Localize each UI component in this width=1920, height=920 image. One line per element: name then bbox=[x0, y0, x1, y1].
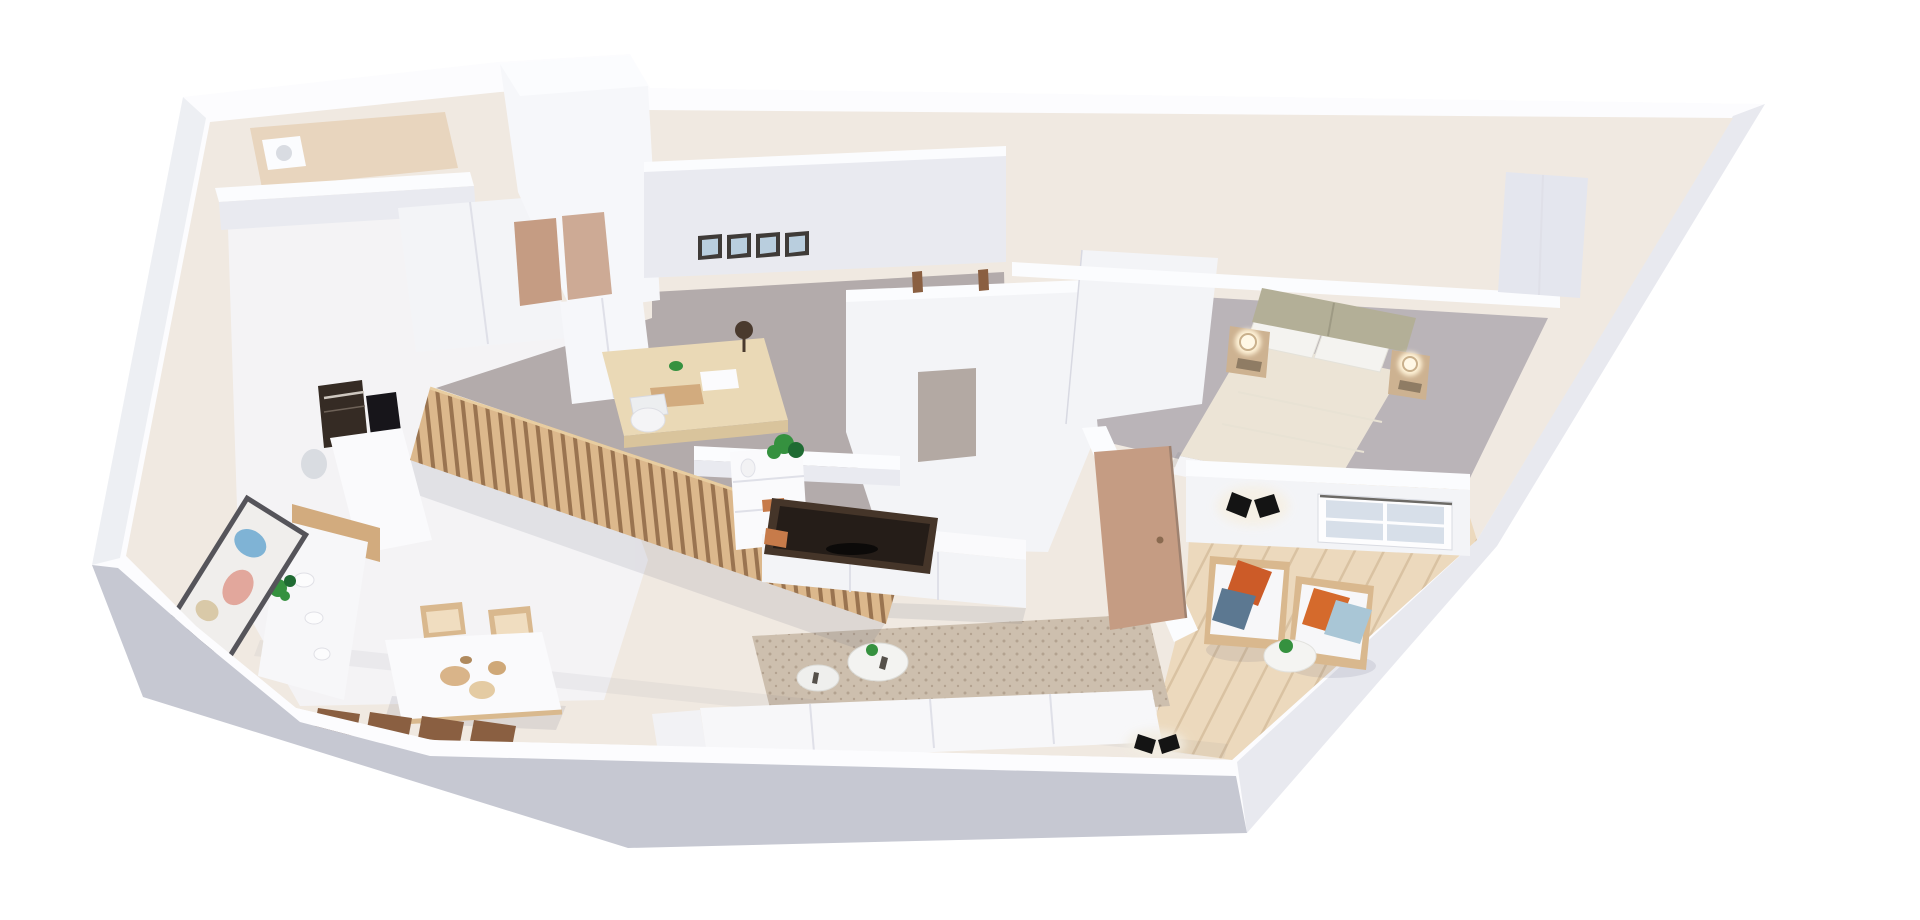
wall-frame-3-glass bbox=[760, 237, 776, 255]
shelf-vase bbox=[741, 459, 755, 477]
wall-frame-1-glass bbox=[702, 239, 718, 257]
wall-frame-4-glass bbox=[789, 236, 805, 254]
entry-wardrobe-door-right bbox=[562, 212, 612, 300]
tv-soundbar-handle bbox=[826, 543, 878, 555]
coffee-table-large bbox=[848, 643, 908, 681]
kitchen-plant-leaf bbox=[280, 591, 290, 601]
floor-plan-render bbox=[0, 0, 1920, 920]
hall-knob-right bbox=[978, 269, 989, 291]
wall-sconce-lower bbox=[1126, 730, 1186, 758]
entry-wardrobe-door-left bbox=[514, 218, 562, 306]
wall-frame-2-glass bbox=[731, 238, 747, 256]
table-bowl-dark bbox=[460, 656, 472, 664]
desk-plant bbox=[669, 361, 683, 371]
table-bowl-large bbox=[440, 666, 470, 686]
hall-door-knob bbox=[1157, 537, 1164, 544]
hallway-doorway-shadow bbox=[918, 368, 976, 462]
nightstand-lamp-left bbox=[1240, 334, 1256, 350]
desk-lamp-head bbox=[735, 321, 753, 339]
counter-bowl-3 bbox=[314, 648, 330, 660]
washer-door bbox=[276, 145, 292, 161]
coffee-table-plant bbox=[866, 644, 878, 656]
hall-knob-left bbox=[912, 271, 923, 293]
dining-chair-seat-left bbox=[426, 609, 461, 633]
dining-table-top bbox=[385, 632, 562, 722]
counter-bowl-2 bbox=[305, 612, 323, 624]
side-table-plant bbox=[1279, 639, 1293, 653]
floor-plan-stage bbox=[0, 0, 1920, 920]
nightstand-lamp-right bbox=[1403, 357, 1417, 371]
kitchen-plant-leaf bbox=[284, 575, 296, 587]
desk-paper bbox=[700, 369, 739, 391]
desk-chair-seat bbox=[631, 408, 665, 432]
wall-sconce-upper bbox=[1217, 486, 1289, 526]
monstera-leaf bbox=[767, 445, 781, 459]
glass-vase bbox=[301, 449, 327, 479]
table-bowl-small bbox=[488, 661, 506, 675]
table-bowl-medium bbox=[469, 681, 495, 699]
monstera-leaf bbox=[788, 442, 804, 458]
counter-bowl-1 bbox=[294, 573, 314, 587]
armchair-left bbox=[1204, 556, 1290, 650]
